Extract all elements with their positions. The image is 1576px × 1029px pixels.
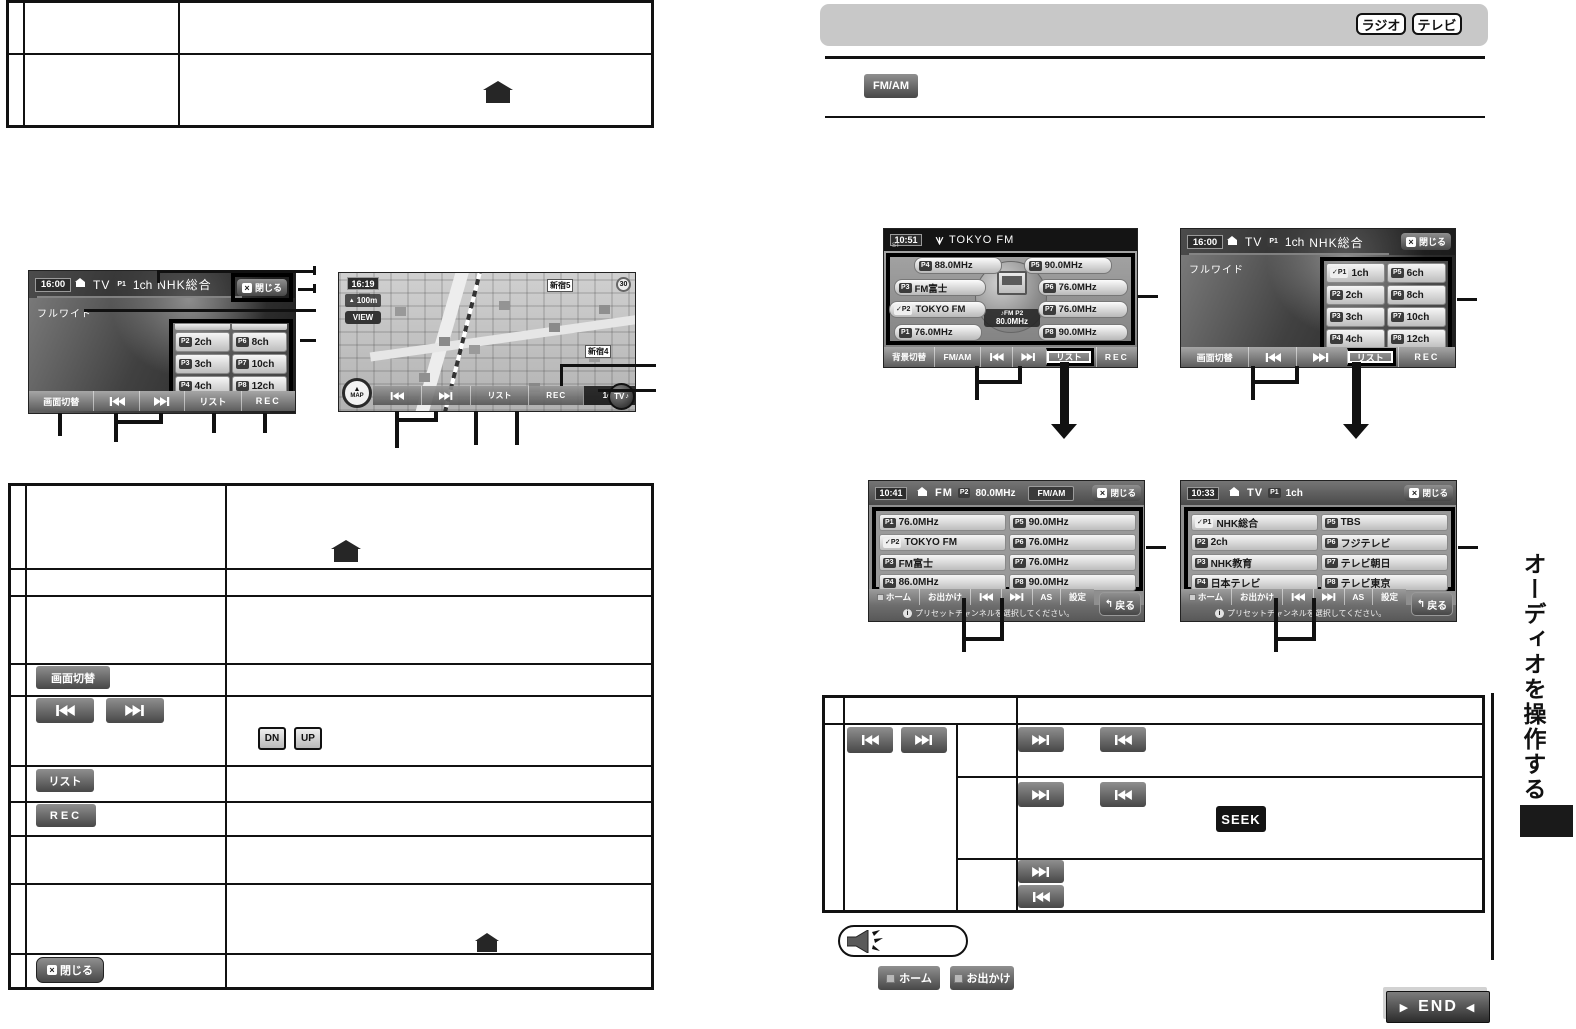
home-mode-icon [486,90,510,103]
preset-button[interactable]: P590.0MHz [1024,257,1112,274]
info-icon: i [903,609,912,618]
rule [825,116,1485,118]
home-mode-icon [1228,240,1237,245]
preset-tag: P5 [1325,518,1338,528]
skip-forward-button[interactable] [1296,347,1344,367]
dn-key[interactable]: DN [258,727,286,750]
compass[interactable]: ▲MAP [342,378,372,408]
preset-tag: P1 [1268,488,1281,498]
tv-screen-figure-2: 16:00 TV P1 1ch NHK総合 ×閉じる フルワイド ✓P11ch … [1180,228,1456,368]
as-button[interactable]: AS [1344,589,1373,605]
home-square-icon [886,974,895,983]
home-button[interactable]: ホーム [869,589,919,605]
close-icon: × [242,283,252,293]
guide-message: プリセットチャンネルを選択してください。 [915,608,1074,619]
seek-indicator-badge: SEEK [1216,806,1266,832]
skip-forward-icon [1031,790,1051,800]
radio-tag-badge: ラジオ [1356,13,1406,35]
skip-forward-icon [1322,593,1336,601]
speaker-note-pill [838,925,968,957]
skip-back-icon [109,397,125,406]
preset-tag: P7 [236,359,249,369]
station-name: NHK総合 [1309,234,1363,251]
skip-back-icon [1265,353,1281,362]
close-button[interactable]: ×閉じる [1404,485,1453,501]
preset-tag: P6 [1325,538,1338,548]
section-rule-vertical [1491,693,1494,960]
table-line [825,723,1482,725]
preset-list-item[interactable]: P22ch [1191,534,1318,551]
callout-stem [474,411,478,445]
list-callout-box: P176.0MHz P590.0MHz ✓P2TOKYO FM P676.0MH… [872,507,1143,591]
list-button[interactable]: リスト [470,386,529,405]
preset-tag: P6 [236,337,249,347]
skip-back-icon [1113,790,1133,800]
tv-list-figure: 10:33 TV P1 1ch ×閉じる ✓P1NHK総合 P5TBS P22c… [1180,480,1457,622]
scale-icon: ▲ [349,298,355,304]
close-icon: × [1409,488,1419,498]
radio-topbar: 10:51 TOKYO FM [884,229,1137,251]
channel-number: 1ch [1285,235,1304,249]
skip-back-icon [979,593,993,601]
tv-source-icon[interactable]: TV♪ [608,383,635,410]
home-mode-icon [334,549,358,562]
source-label: FM [935,487,953,499]
rec-button[interactable]: REC [1096,347,1137,367]
preset-tag: P5 [1013,518,1026,528]
rec-button[interactable]: REC [241,391,295,411]
callout-line [1458,546,1478,549]
preset-tag: P6 [1043,283,1056,293]
arrow-head [1343,424,1369,439]
preset-button-selected[interactable]: ✓P2TOKYO FM [889,301,986,318]
callout-stem [962,598,966,652]
aspect-label: フルワイド [37,305,92,320]
table-line [11,568,651,570]
rec-button[interactable]: REC [36,804,96,827]
preset-tag: P2 [958,488,971,498]
end-marker: ▶ END ◀ [1386,991,1490,1023]
skip-forward-button[interactable] [1313,589,1344,605]
rule [825,56,1485,59]
close-icon: × [47,965,57,975]
preset-tag: P4 [179,381,192,391]
callout-line [1146,546,1166,549]
preset-tag: P4 [883,578,896,588]
table-line [23,3,25,125]
list-bottombar: ホーム お出かけ AS 設定 [869,589,1094,605]
channel-button[interactable]: P710ch [1387,307,1446,327]
skip-forward-icon [1021,353,1036,361]
home-button[interactable]: ホーム [1181,589,1231,605]
map-scale-badge[interactable]: ▲100m [345,294,381,307]
channel-button[interactable]: P812ch [1387,329,1446,349]
callout-line [598,389,656,392]
arrow-head [1051,424,1077,439]
radio-center-text: ♪FM P2 80.0MHz [984,309,1040,327]
preset-tag: P7 [1325,558,1338,568]
chapter-tab [1520,805,1573,837]
callout-bracket [1274,637,1316,641]
tv-bottombar: 画面切替 リスト REC [29,391,295,411]
list-topbar: 10:41 FM P2 80.0MHz FM/AM ×閉じる [869,481,1144,505]
preset-list-item-selected[interactable]: ✓P1NHK総合 [1191,514,1318,531]
table-line [11,835,651,837]
channel-button-selected[interactable]: ✓P11ch [1326,263,1385,283]
home-button[interactable]: ホーム [878,966,940,990]
skip-forward-button[interactable] [1018,860,1064,883]
skip-forward-icon [124,705,146,716]
channel-button[interactable]: P33ch [175,354,230,374]
preset-tag: P4 [919,261,932,271]
fmam-button[interactable]: FM/AM [864,74,918,98]
speed-sign: 30 [616,277,631,292]
station-name: NHK総合 [157,276,211,293]
guide-message: プリセットチャンネルを選択してください。 [1227,608,1386,619]
home-square-icon [1189,594,1196,601]
table-line [11,953,651,955]
preset-tag: P3 [883,558,896,568]
callout-stem [395,418,399,448]
callout-tick [313,266,316,275]
preset-tag: P3 [899,283,912,293]
map-screen-figure: 16:19 ▲100m VIEW 新宿5 30 新宿4 ▲MAP リスト REC… [338,272,636,412]
skip-back-button[interactable] [970,589,1001,605]
map-area-label: 新宿4 [585,345,611,358]
preset-list-item[interactable]: P5TBS [1321,514,1448,531]
screen-switch-button[interactable]: 画面切替 [1181,347,1248,367]
table-line [11,801,651,803]
skip-back-button[interactable] [980,347,1012,367]
compass-label: MAP [350,393,363,399]
preset-list-item[interactable]: P3FM富士 [879,554,1006,571]
skip-back-button[interactable] [847,727,893,753]
back-button[interactable]: ↰戻る [1099,592,1141,616]
close-icon: × [1097,488,1107,498]
callout-bracket [114,420,163,424]
clock: 10:41 [875,487,907,500]
home-mode-icon [918,491,927,496]
music-note-icon: ♪ [625,393,629,400]
list-callout-box: ✓P1NHK総合 P5TBS P22ch P6フジテレビ P3NHK教育 P7テ… [1184,507,1455,591]
channel-button[interactable]: P44ch [1326,329,1385,349]
preset-button[interactable]: P776.0MHz [1038,301,1128,318]
skip-forward-icon [439,392,453,400]
callout-stem [263,413,267,433]
arrow-shaft [1352,362,1361,426]
return-arrow-icon: ↰ [1105,599,1113,610]
aspect-label: フルワイド [1189,261,1244,276]
preset-tag: P2 [1195,538,1208,548]
preset-tag: P1 [1267,237,1280,247]
tv-topbar: 16:00 TV P1 1ch NHK総合 ×閉じる [1181,229,1455,255]
screen-switch-button[interactable]: 画面切替 [29,391,93,411]
preset-list-item[interactable]: P7テレビ朝日 [1321,554,1448,571]
fmam-button[interactable]: FM/AM [934,347,979,367]
arrow-shaft [1060,362,1069,426]
radio-illustration [997,271,1027,295]
home-mode-icon [76,282,85,287]
as-button[interactable]: AS [1032,589,1061,605]
callout-stem [515,411,519,445]
left-top-table [6,0,654,128]
channel-button[interactable]: P710ch [232,354,287,374]
view-button[interactable]: VIEW [345,311,381,324]
preset-tag: P8 [1043,328,1056,338]
channel-number: 1ch [1286,488,1303,499]
callout-line [157,270,160,283]
odekake-square-icon [954,974,963,983]
fm-list-figure: 10:41 FM P2 80.0MHz FM/AM ×閉じる P176.0MHz… [868,480,1145,622]
skip-forward-button[interactable] [1018,727,1064,752]
preset-tag: P1 [899,328,912,338]
rec-button[interactable]: REC [528,386,583,405]
source-label: TV [1247,487,1263,499]
source-label: TV [1245,235,1262,249]
close-button[interactable]: ×閉じる [1092,485,1141,501]
tv-bottombar: 画面切替 リスト REC [1181,347,1455,367]
skip-back-button[interactable] [93,391,138,411]
preset-button[interactable]: P488.0MHz [914,257,1002,274]
skip-back-button[interactable] [36,698,94,723]
home-mode-icon [477,941,497,952]
skip-forward-icon [1010,593,1024,601]
map-area-label: 新宿5 [547,279,573,292]
table-line [25,486,27,987]
table-line [956,723,958,910]
callout-stem [1274,598,1278,652]
clock: 16:19 [347,277,379,290]
preset-tag-selected: ✓P1 [1330,268,1348,278]
skip-back-button[interactable] [1282,589,1313,605]
preset-button[interactable]: P176.0MHz [894,324,982,341]
chapter-title-vertical: オーディオを操作する [1516,552,1550,802]
skip-back-button[interactable] [1018,885,1064,908]
callout-stem [212,413,216,433]
callout-line [560,364,563,386]
skip-forward-button[interactable] [901,727,947,753]
preset-list-item[interactable]: P3NHK教育 [1191,554,1318,571]
skip-back-icon [1031,892,1051,902]
preset-tag: P8 [1391,334,1404,344]
channel-button[interactable]: P22ch [1326,285,1385,305]
channel-button[interactable]: P33ch [1326,307,1385,327]
list-topbar: 10:33 TV P1 1ch ×閉じる [1181,481,1456,505]
skip-back-icon [1291,593,1305,601]
skip-back-button[interactable] [1248,347,1296,367]
close-callout-box: ×閉じる [231,273,293,302]
settings-button[interactable]: 設定 [1060,589,1094,605]
skip-back-icon [54,705,76,716]
callout-line [1457,298,1477,301]
close-icon: × [1406,237,1416,247]
preset-list-item[interactable]: P176.0MHz [879,514,1006,531]
rec-button[interactable]: REC [1398,347,1455,367]
table-line [956,776,1482,778]
skip-forward-button[interactable] [139,391,184,411]
callout-bracket [1251,380,1299,384]
preset-tag: P7 [1043,305,1056,315]
skip-forward-button[interactable] [1018,782,1064,807]
skip-forward-icon [1031,867,1051,877]
channel-button[interactable]: P68ch [232,332,287,352]
preset-list-item[interactable]: P6フジテレビ [1321,534,1448,551]
clock: 10:33 [1187,487,1219,500]
tv-tag-badge: テレビ [1412,13,1462,35]
up-key[interactable]: UP [294,727,322,750]
channel-button[interactable]: P22ch [175,332,230,352]
callout-stem [1312,598,1316,641]
preset-button[interactable]: P890.0MHz [1038,324,1128,341]
preset-tag-selected: ✓P1 [1195,518,1213,528]
skip-back-icon [390,392,404,400]
close-button[interactable]: ×閉じる [237,279,287,296]
speaker-icon [847,930,889,953]
map-bottombar: リスト REC 1ch [373,386,635,405]
skip-back-button[interactable] [1100,782,1146,807]
stereo-indicator: ST [892,243,900,249]
table-line [11,695,651,697]
station-name: TOKYO FM [949,234,1014,246]
preset-list-item[interactable]: P776.0MHz [1009,554,1136,571]
clipped-channel-button [175,324,230,330]
screen-switch-button[interactable]: 画面切替 [36,666,110,689]
left-triangle-icon: ◀ [1466,1001,1476,1014]
preset-list-item[interactable]: P676.0MHz [1009,534,1136,551]
callout-bracket [395,418,438,422]
callout-line [300,339,316,342]
preset-tag: P3 [1195,558,1208,568]
info-icon: i [1215,609,1224,618]
callout-line [84,309,316,312]
callout-bracket [975,380,1022,384]
preset-list-item-selected[interactable]: ✓P2TOKYO FM [879,534,1006,551]
callout-stem [1000,598,1004,641]
preset-tag-selected: ✓P2 [894,305,912,315]
list-bottombar: ホーム お出かけ AS 設定 [1181,589,1406,605]
preset-tag: P2 [1330,290,1343,300]
close-button[interactable]: ×閉じる [36,957,104,983]
channel-callout-box: ✓P11ch P56ch P22ch P68ch P33ch P710ch P4… [1320,257,1452,355]
background-switch-button[interactable]: 背景切替 [884,347,934,367]
preset-tag: P8 [1013,578,1026,588]
list-button[interactable]: リスト [184,391,240,411]
skip-back-button[interactable] [1100,727,1146,752]
return-arrow-icon: ↰ [1417,599,1425,610]
left-description-table [8,483,654,990]
preset-tag-selected: ✓P2 [883,538,901,548]
table-line [11,765,651,767]
callout-line [157,270,316,273]
skip-back-icon [1113,735,1133,745]
channel-button[interactable]: P68ch [1387,285,1446,305]
clock: 16:00 [1187,235,1223,249]
skip-forward-button[interactable] [1001,589,1032,605]
clipped-channel-button [232,324,287,330]
preset-tag: P1 [115,280,128,290]
skip-forward-button[interactable] [421,386,470,405]
preset-tag: P2 [179,337,192,347]
preset-tag: P3 [179,359,192,369]
preset-list-item[interactable]: P590.0MHz [1009,514,1136,531]
skip-forward-icon [1313,353,1329,362]
preset-tag: P8 [236,381,249,391]
list-button[interactable]: リスト [36,769,94,792]
fmam-button[interactable]: FM/AM [1028,486,1074,501]
list-button-highlighted[interactable]: リスト [1046,348,1094,366]
radio-screen-figure: 10:51 TOKYO FM ST ♪FM P2 80.0MHz P488.0M… [883,228,1138,368]
preset-tag: P7 [1391,312,1404,322]
callout-stem [114,420,118,442]
right-triangle-icon: ▶ [1400,1001,1410,1014]
preset-tag: P7 [1013,558,1026,568]
callout-stem [58,413,62,436]
radio-bottombar: 背景切替 FM/AM リスト REC [884,347,1137,367]
preset-button[interactable]: P676.0MHz [1038,279,1128,296]
preset-tag: P5 [1391,268,1404,278]
table-line [225,486,227,987]
table-line [843,698,845,910]
preset-tag: P8 [1325,578,1338,588]
back-button[interactable]: ↰戻る [1411,592,1453,616]
table-line [11,663,651,665]
preset-tag: P3 [1330,312,1343,322]
table-line [9,53,651,55]
channel-number: 1ch [133,278,152,292]
home-mode-icon [1230,491,1239,496]
clock: 16:00 [35,278,71,292]
preset-tag: P6 [1013,538,1026,548]
antenna-icon [935,236,944,245]
channel-callout-box: P22ch P68ch P33ch P710ch P44ch P812ch [169,319,293,399]
close-button[interactable]: ×閉じる [1401,233,1451,250]
settings-button[interactable]: 設定 [1372,589,1406,605]
table-line [11,595,651,597]
odekake-button[interactable]: お出かけ [950,966,1014,990]
callout-line [1138,295,1158,298]
skip-back-button[interactable] [373,386,421,405]
tv-screen-figure: 16:00 TV P1 1ch NHK総合 ×閉じる フルワイド P22ch P… [28,270,296,414]
callout-line [560,364,656,367]
home-square-icon [877,594,884,601]
table-line [11,883,651,885]
frequency-label: 80.0MHz [975,488,1015,499]
channel-button[interactable]: P56ch [1387,263,1446,283]
skip-back-icon [989,353,1004,361]
skip-forward-icon [1031,735,1051,745]
preset-tag: P4 [1330,334,1343,344]
callout-bracket [962,637,1004,641]
preset-tag: P6 [1391,290,1404,300]
callout-tick [313,284,316,293]
skip-forward-icon [154,397,170,406]
tv-label: TV [614,392,624,401]
source-label: TV [93,278,110,292]
skip-forward-icon [914,735,934,745]
table-line [178,3,180,125]
preset-tag: P5 [1029,261,1042,271]
skip-forward-button[interactable] [1012,347,1044,367]
skip-back-icon [860,735,880,745]
preset-tag: P1 [883,518,896,528]
preset-button[interactable]: P3FM富士 [894,279,986,296]
skip-forward-button[interactable] [106,698,164,723]
preset-tag: P4 [1195,578,1208,588]
